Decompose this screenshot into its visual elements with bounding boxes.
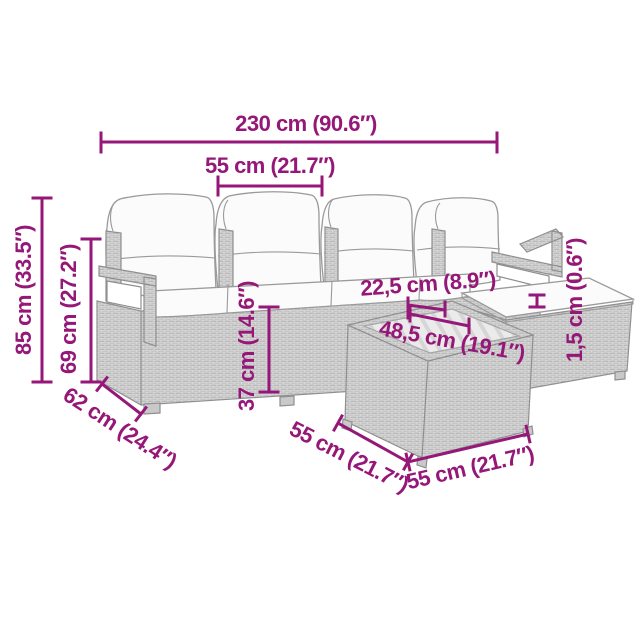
dim-label-height-backrest: 69 cm (27.2″): [56, 244, 81, 374]
dim-seat-width: 55 cm (21.7″): [205, 153, 335, 195]
dim-overall-width: 230 cm (90.6″): [101, 111, 497, 152]
right-armrest: [492, 229, 563, 289]
sofa-illustration: [97, 192, 633, 468]
dim-label-pad-thickness: 1,5 cm (0.6″): [562, 238, 587, 362]
dim-height-backrest: 69 cm (27.2″): [56, 239, 100, 382]
dim-label-height-seat: 37 cm (14.6″): [234, 281, 259, 411]
diagram-canvas: 230 cm (90.6″) 55 cm (21.7″) 85 cm (33.5…: [0, 0, 640, 640]
dim-height-total: 85 cm (33.5″): [11, 198, 51, 382]
dim-label-seat-width: 55 cm (21.7″): [205, 153, 335, 178]
product-dimension-diagram: 230 cm (90.6″) 55 cm (21.7″) 85 cm (33.5…: [0, 0, 640, 640]
dim-label-overall-width: 230 cm (90.6″): [235, 111, 377, 136]
dim-label-height-total: 85 cm (33.5″): [11, 225, 36, 355]
